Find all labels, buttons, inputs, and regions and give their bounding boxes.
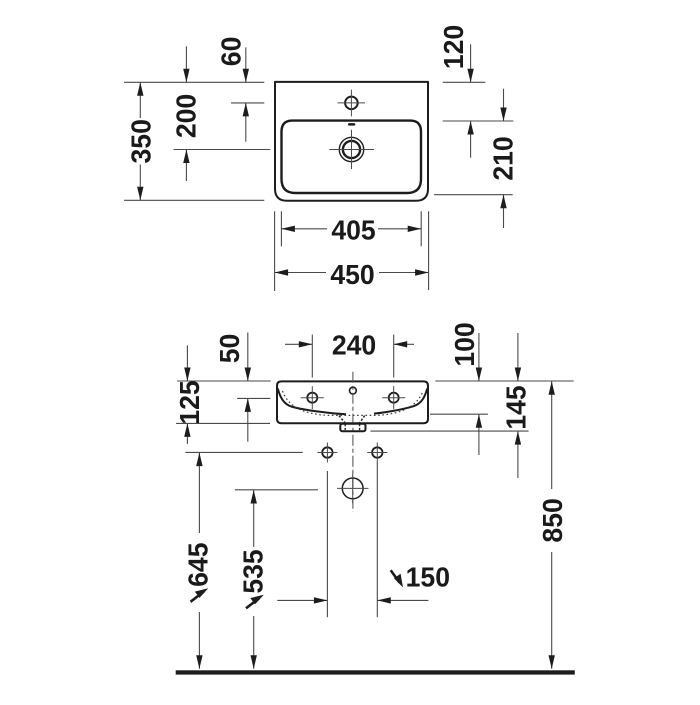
svg-text:350: 350	[125, 119, 157, 163]
svg-text:50: 50	[213, 334, 245, 364]
svg-text:450: 450	[330, 258, 374, 290]
svg-text:150: 150	[406, 561, 450, 593]
svg-text:405: 405	[331, 214, 375, 246]
svg-text:210: 210	[487, 136, 519, 180]
svg-text:60: 60	[215, 37, 247, 67]
svg-text:145: 145	[500, 385, 532, 429]
svg-text:200: 200	[170, 94, 202, 138]
svg-text:125: 125	[174, 380, 206, 424]
svg-text:240: 240	[332, 329, 376, 361]
svg-text:645: 645	[182, 543, 214, 587]
svg-text:100: 100	[448, 322, 480, 366]
svg-text:535: 535	[237, 549, 269, 593]
svg-text:850: 850	[536, 498, 568, 542]
svg-text:120: 120	[437, 25, 469, 69]
